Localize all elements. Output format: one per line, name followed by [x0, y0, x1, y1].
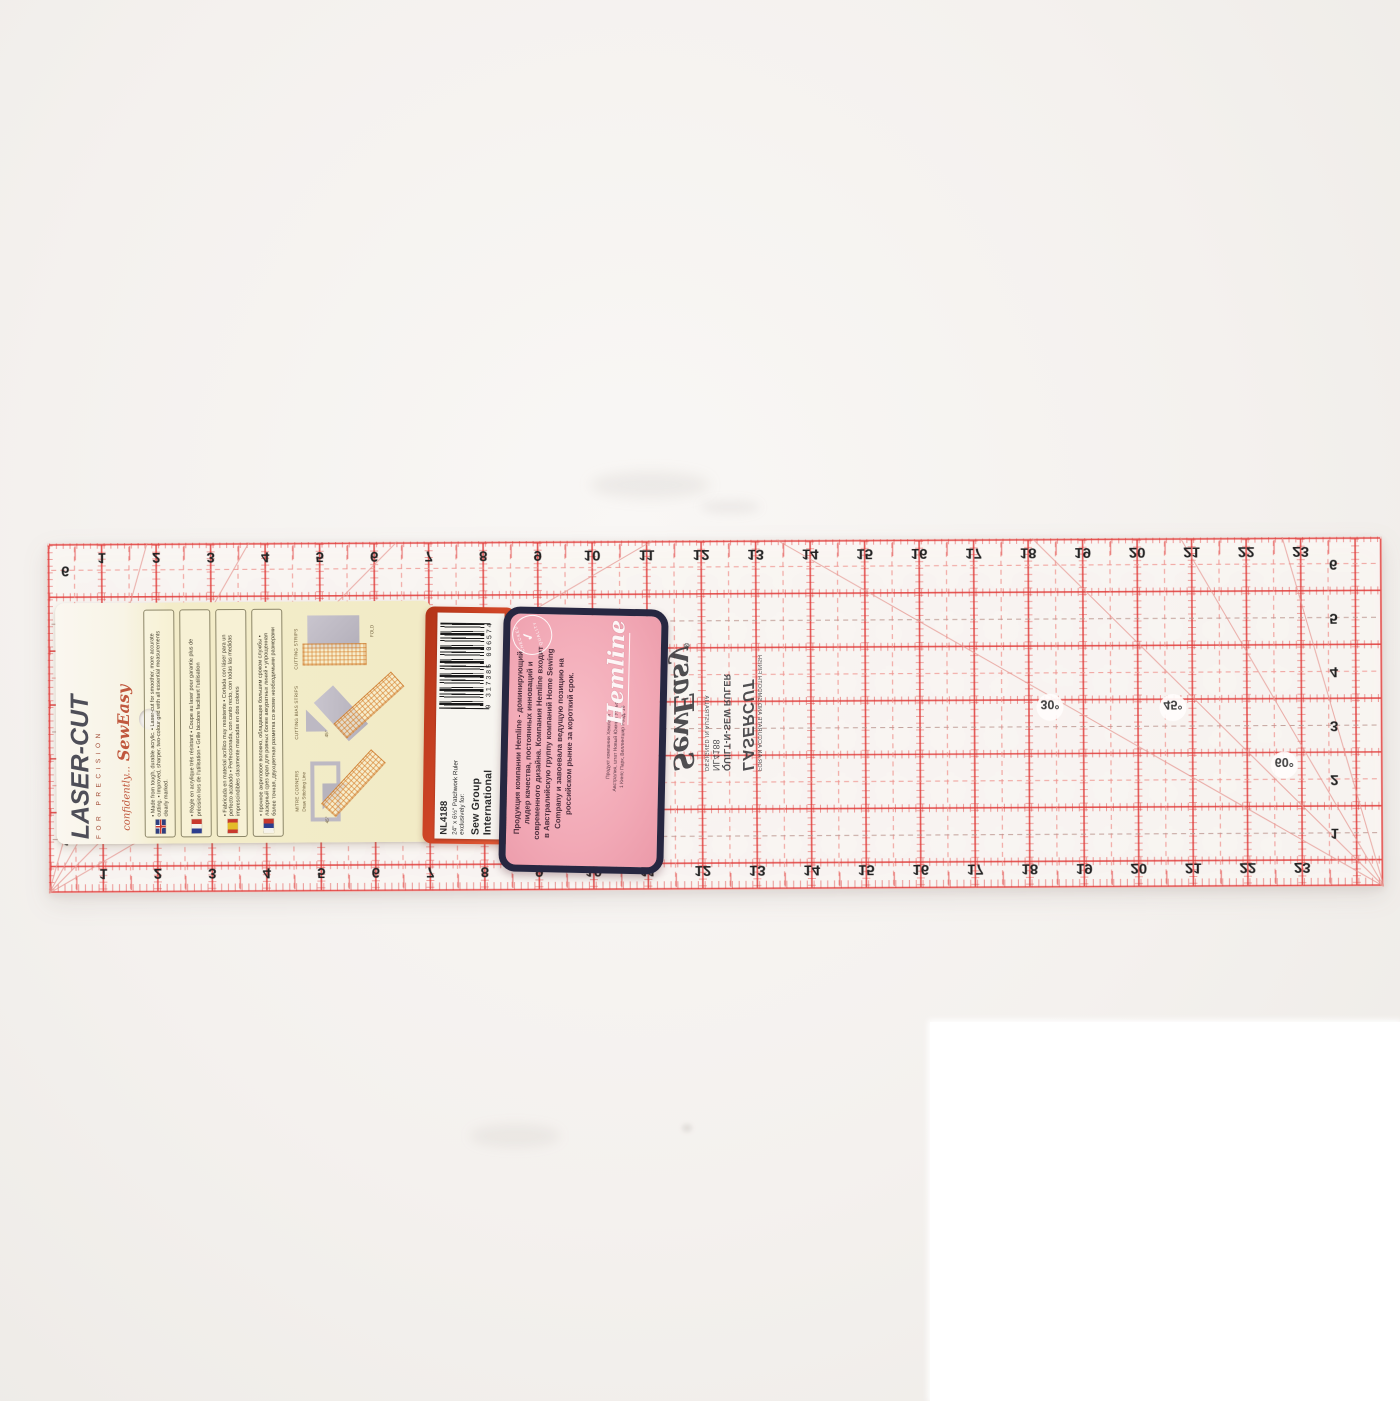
ruler-number: 22 [1238, 543, 1255, 560]
background-smudge [700, 500, 760, 514]
ruler-number: 3 [208, 865, 216, 882]
ruler-number: 5 [317, 864, 325, 881]
lasercut-wordmark: LASERCUT [738, 663, 756, 771]
ruler-number: 14 [802, 545, 819, 562]
card-script-tagline: confidently... SewEasy [113, 621, 140, 831]
card-section-uk: ▪ Made from tough, durable acrylic. ▪ La… [143, 609, 176, 837]
ruler-number: 9 [533, 547, 541, 564]
ruler-number: 16 [912, 861, 929, 878]
sew-easy-logo: SewEasy® [667, 643, 698, 771]
packaging-card: LASER-CUT FOR PRECISION confidently... S… [55, 601, 433, 845]
card-diagrams: CUTTING STRIPS FOLD CUTTING BIAS STRIPS … [293, 609, 429, 836]
uk-flag-icon [155, 820, 165, 834]
ruler-number: 18 [1021, 860, 1038, 877]
card-language-sections: ▪ Made from tough, durable acrylic. ▪ La… [143, 609, 289, 838]
diagram-cutting-strips: CUTTING STRIPS FOLD [293, 611, 427, 674]
ruler-overlay-graphic [302, 643, 366, 665]
fr-flag-icon [191, 819, 201, 833]
ruler-number: 19 [1076, 860, 1093, 877]
ruler-number: 1 [1330, 825, 1338, 842]
ruler-origin: DESIGNED IN AUSTRALIA [703, 663, 709, 771]
es-flag-icon [227, 819, 237, 833]
ruler-number: 21 [1185, 859, 1202, 876]
barcode: 9 317385 006574 [439, 619, 500, 712]
ruler-lasercut-block: FOR AN ACCURATE AND SMOOTH FINISH LASERC… [732, 663, 762, 771]
pink-label-paragraph: Продукция компании Hemline - доминирующи… [512, 643, 604, 845]
ruler-number: 2 [154, 865, 162, 882]
ruler-number: 23 [1292, 543, 1309, 560]
ruler-number: 6 [370, 548, 378, 565]
diagram-cutting-bias-strips: CUTTING BIAS STRIPS 45° [294, 679, 428, 746]
angle-label: 45° [1163, 698, 1182, 712]
ruler-number: 18 [1020, 544, 1037, 561]
ruler-number: 7 [426, 863, 434, 880]
ruler-number: 22 [1239, 859, 1256, 876]
ruler-number: 5 [315, 548, 323, 565]
card-section-bullets: ▪ Made from tough, durable acrylic. ▪ La… [150, 618, 170, 817]
ruler-number: 16 [911, 545, 928, 562]
ruler-number: 12 [694, 862, 711, 879]
ruler-number: 20 [1130, 860, 1147, 877]
background-white-patch [930, 1022, 1400, 1401]
barcode-sticker: NL4188 24" x 6½" Patchwork Ruler exclusi… [434, 613, 504, 840]
ruler-number: 6 [1329, 556, 1337, 573]
ruler-number: 8 [481, 863, 489, 880]
card-section-fr: ▪ Règle en acrylique très résistant ▪ Co… [179, 609, 212, 837]
angle-label: 30° [1040, 697, 1059, 711]
ruler-number: 6 [372, 864, 380, 881]
ruler-number: 2 [152, 549, 160, 566]
pink-hemline-label: Продукция компании Hemline - доминирующи… [498, 606, 669, 874]
ruler-number: 19 [1074, 544, 1091, 561]
diagram-mitre-corners: MITRE CORNERS Draw Stitching Line 45° [294, 753, 429, 828]
sticker-company: Sew Group International [469, 717, 495, 835]
ruler-number: 12 [693, 546, 710, 563]
ruler-number: 11 [639, 546, 655, 563]
card-section-bullets: ▪ прочное акриловое волокно, обладающее … [258, 617, 278, 816]
hemline-script-logo: Hemline [604, 632, 630, 724]
ruler-number: 13 [749, 862, 766, 879]
ruler-number: 3 [206, 549, 214, 566]
for-precision-label: FOR PRECISION [94, 609, 103, 839]
card-brand-block: LASER-CUT FOR PRECISION [65, 609, 113, 839]
ruler-number: 4 [1330, 663, 1339, 680]
ruler-number: 15 [856, 545, 873, 562]
barcode-digits: 9 317385 006574 [485, 619, 494, 711]
ruler-number: 14 [803, 861, 820, 878]
background-smudge [470, 1125, 560, 1147]
ruler-number: 15 [858, 861, 875, 878]
ruler-number: 5 [1329, 610, 1337, 627]
card-section-es: ▪ Fabricada en material acrílico muy res… [215, 609, 248, 837]
ruler-number: 17 [967, 861, 984, 878]
sticker-for-line: exclusively for: [458, 717, 467, 835]
ruler-number: 20 [1129, 544, 1146, 561]
laser-cut-wordmark: LASER-CUT [65, 609, 96, 839]
ruler-number: 10 [584, 547, 601, 564]
ruler-code: NL4188 [711, 663, 721, 771]
sticker-product-code: NL4188 [438, 717, 451, 835]
ruler-number: 13 [747, 546, 764, 563]
product-photo: { "photo": { "background_color": "#f4f1e… [0, 0, 1400, 1401]
ruler-title-block: QUILT-N-SEW RULER NL4188 DESIGNED IN AUS… [698, 663, 732, 771]
ruler-number: 1 [97, 549, 105, 566]
ruler-tagline: FOR AN ACCURATE AND SMOOTH FINISH [756, 663, 762, 771]
ruler-number: 23 [1294, 859, 1311, 876]
ruler-number: 8 [479, 547, 487, 564]
ru-flag-icon [263, 819, 273, 833]
ruler-number: 6 [61, 562, 69, 579]
ruler-number: 21 [1183, 543, 1200, 560]
ruler-number: 4 [263, 864, 272, 881]
ruler-number: 1 [99, 865, 107, 882]
card-section-bullets: ▪ Règle en acrylique très résistant ▪ Co… [189, 617, 203, 816]
ruler-number: 3 [1330, 717, 1338, 734]
ruler-title: QUILT-N-SEW RULER [722, 663, 732, 771]
ruler-number: 17 [965, 545, 982, 562]
ruler-number: 4 [261, 548, 270, 565]
card-section-bullets: ▪ Fabricada en material acrílico muy res… [222, 617, 242, 816]
ruler-number: 7 [424, 547, 432, 564]
background-smudge [682, 1124, 692, 1132]
card-section-ru: ▪ прочное акриловое волокно, обладающее … [251, 609, 284, 837]
background-smudge [590, 472, 710, 498]
ruler-number: 2 [1330, 771, 1338, 788]
angle-label: 60° [1275, 755, 1294, 769]
